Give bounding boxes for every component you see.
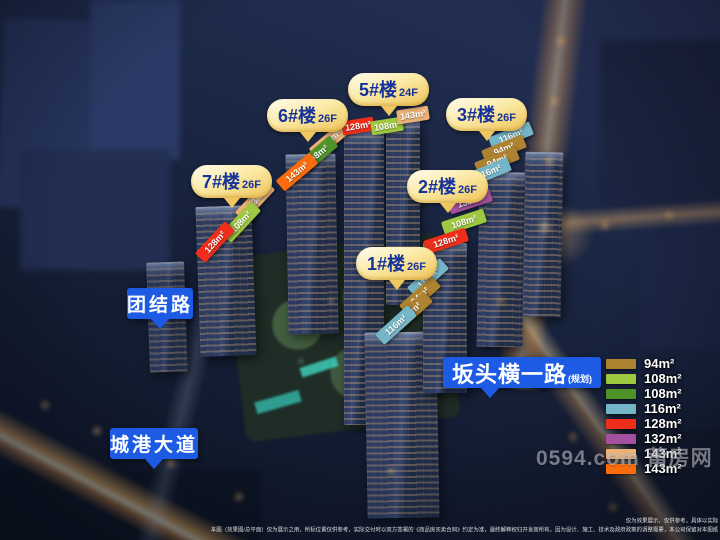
road-name: 坂头横一路 xyxy=(452,357,567,389)
legend-swatch-116 xyxy=(606,404,636,414)
road-label-tuanjie: 团结路 xyxy=(127,288,193,319)
ribbon-5-143: 143m² xyxy=(396,106,430,125)
building-label-3: 3#楼 26F xyxy=(446,98,527,131)
legend-label: 116m² xyxy=(644,404,681,414)
road-label-bantouheng: 坂头横一路 (规划) xyxy=(443,357,601,388)
building-name: 6#楼 xyxy=(278,102,316,128)
bg-city-block xyxy=(600,40,720,210)
bg-city-block xyxy=(640,230,720,350)
road-label-chenggang: 城港大道 xyxy=(110,428,198,459)
building-name: 3#楼 xyxy=(457,101,495,127)
road-name-note: (规划) xyxy=(568,372,592,385)
legend-row: 128m² xyxy=(606,419,682,429)
legend-label: 108m² xyxy=(644,374,682,384)
legend-label: 94m² xyxy=(644,359,674,369)
building-floors: 24F xyxy=(399,87,418,99)
legend-row: 108m² xyxy=(606,374,682,384)
legend-row: 94m² xyxy=(606,359,682,369)
bg-street-lights xyxy=(0,0,2,2)
bg-city-block xyxy=(20,150,170,270)
aerial-site-plan: 143m² 108m² 128m² 143m² 108m² 143m² 128m… xyxy=(0,0,720,540)
building-label-1: 1#楼 26F xyxy=(356,247,437,280)
road-name: 城港大道 xyxy=(110,430,198,457)
disclaimer-line-1: 仅为效果展示，仅供参考，具体以实际 xyxy=(211,516,718,525)
legend-label: 128m² xyxy=(644,419,682,429)
building-floors: 26F xyxy=(407,261,426,273)
legend-swatch-108-light xyxy=(606,374,636,384)
watermark: 0594.com 莆房网 xyxy=(536,442,713,472)
legend-row: 116m² xyxy=(606,404,682,414)
building-label-2: 2#楼 26F xyxy=(407,170,488,203)
building-name: 2#楼 xyxy=(418,173,456,199)
legend-label: 108m² xyxy=(644,389,682,399)
disclaimer: 仅为效果展示，仅供参考，具体以实际 本图（效果图/总平面）仅为展示之用，所标位置… xyxy=(211,516,718,534)
building-name: 1#楼 xyxy=(367,250,405,276)
disclaimer-line-2: 本图（效果图/总平面）仅为展示之用，所标位置仅供参考，实际交付时以双方签署的《商… xyxy=(211,525,718,534)
building-name: 7#楼 xyxy=(202,168,240,194)
building-floors: 26F xyxy=(497,112,516,124)
building-label-7: 7#楼 26F xyxy=(191,165,272,198)
legend-swatch-128 xyxy=(606,419,636,429)
legend-row: 108m² xyxy=(606,389,682,399)
building-floors: 26F xyxy=(318,113,337,125)
building-label-6: 6#楼 26F xyxy=(267,99,348,132)
building-floors: 26F xyxy=(458,184,477,196)
road-name: 团结路 xyxy=(127,290,193,317)
legend-swatch-94 xyxy=(606,359,636,369)
building-floors: 26F xyxy=(242,179,261,191)
bg-tower-3b xyxy=(523,152,564,318)
building-name: 5#楼 xyxy=(359,76,397,102)
bg-city-block xyxy=(90,0,180,160)
legend-swatch-108-dark xyxy=(606,389,636,399)
building-label-5: 5#楼 24F xyxy=(348,73,429,106)
